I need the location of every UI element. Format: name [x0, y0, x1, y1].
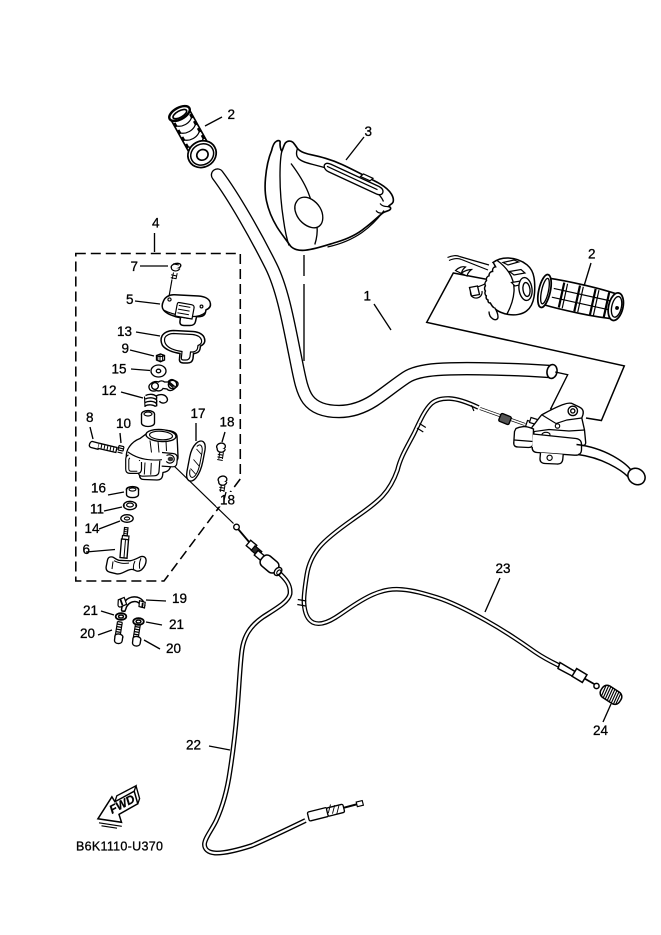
svg-text:14: 14 — [85, 521, 101, 536]
svg-text:5: 5 — [126, 292, 134, 307]
svg-text:10: 10 — [116, 416, 131, 431]
svg-text:3: 3 — [365, 124, 373, 139]
svg-text:17: 17 — [191, 406, 206, 421]
svg-text:24: 24 — [593, 723, 609, 738]
svg-text:6: 6 — [83, 542, 91, 557]
svg-text:8: 8 — [86, 410, 94, 425]
svg-text:18: 18 — [220, 415, 235, 430]
svg-text:13: 13 — [117, 324, 132, 339]
svg-text:21: 21 — [83, 603, 98, 618]
svg-text:20: 20 — [80, 626, 95, 641]
svg-text:1: 1 — [364, 289, 372, 304]
svg-text:2: 2 — [588, 247, 596, 262]
svg-text:23: 23 — [496, 561, 511, 576]
svg-text:2: 2 — [228, 107, 236, 122]
svg-text:9: 9 — [122, 341, 130, 356]
svg-text:12: 12 — [102, 383, 117, 398]
svg-text:7: 7 — [131, 259, 139, 274]
svg-text:B6K1110-U370: B6K1110-U370 — [76, 840, 163, 854]
svg-text:15: 15 — [112, 362, 127, 377]
svg-text:20: 20 — [166, 641, 181, 656]
svg-text:11: 11 — [90, 502, 104, 517]
svg-text:19: 19 — [172, 591, 187, 606]
svg-text:21: 21 — [169, 617, 184, 632]
svg-text:4: 4 — [152, 216, 160, 231]
svg-text:16: 16 — [91, 481, 106, 496]
svg-text:22: 22 — [186, 738, 201, 753]
svg-text:18: 18 — [220, 493, 235, 508]
